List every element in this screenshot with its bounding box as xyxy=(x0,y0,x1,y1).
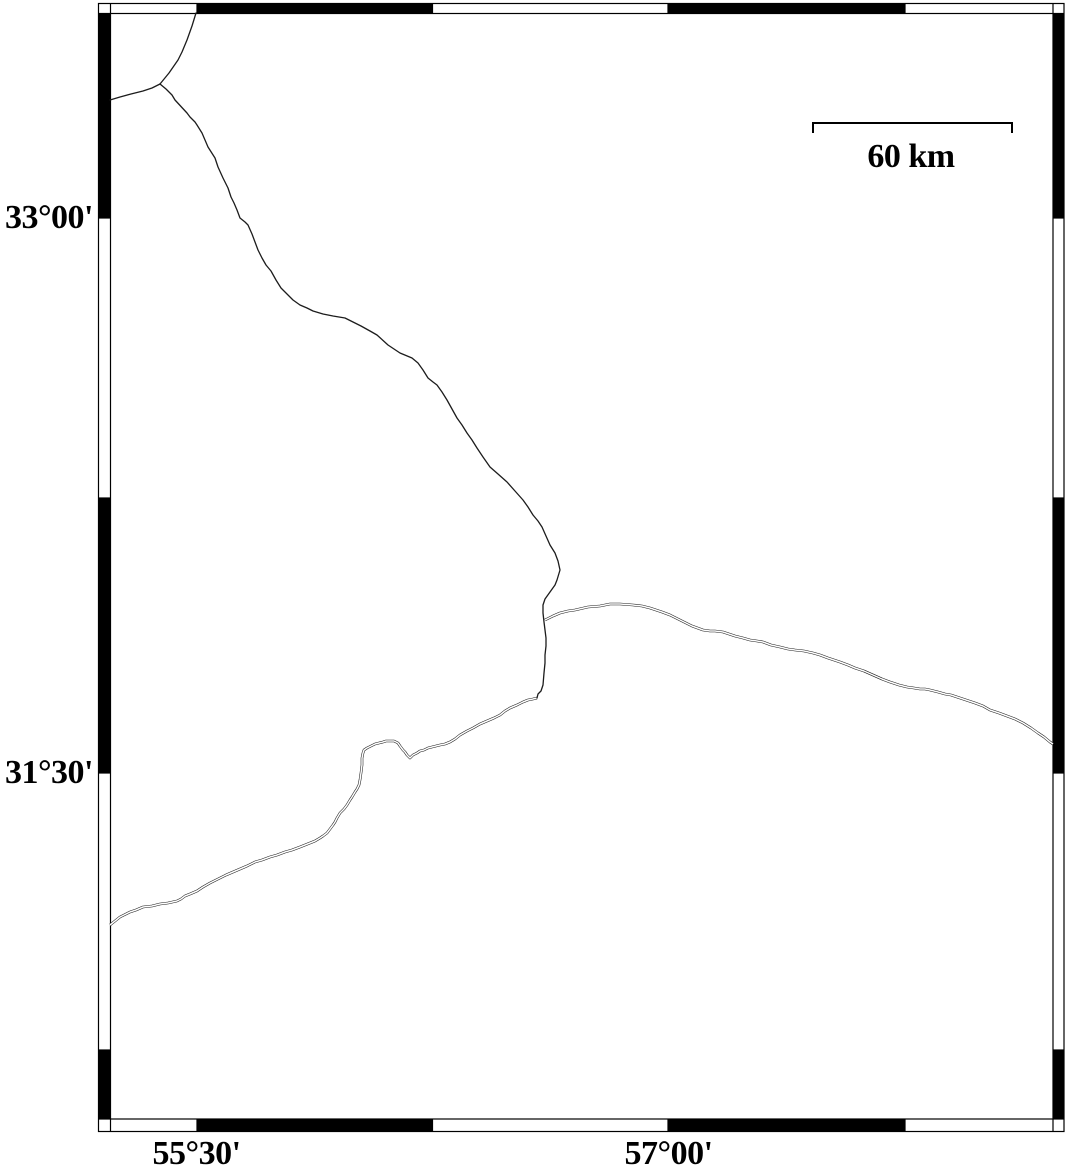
scale-bar-label: 60 km xyxy=(831,139,991,175)
map-canvas xyxy=(0,0,1066,1169)
lon-label-55-30: 55°30' xyxy=(117,1136,277,1169)
lat-label-33-00: 33°00' xyxy=(0,200,93,236)
lat-label-31-30: 31°30' xyxy=(0,755,93,791)
scale-bar-bracket xyxy=(812,122,1013,133)
lon-label-57-00: 57°00' xyxy=(589,1136,749,1169)
map-figure: 33°00' 31°30' 55°30' 57°00' 60 km xyxy=(0,0,1066,1169)
